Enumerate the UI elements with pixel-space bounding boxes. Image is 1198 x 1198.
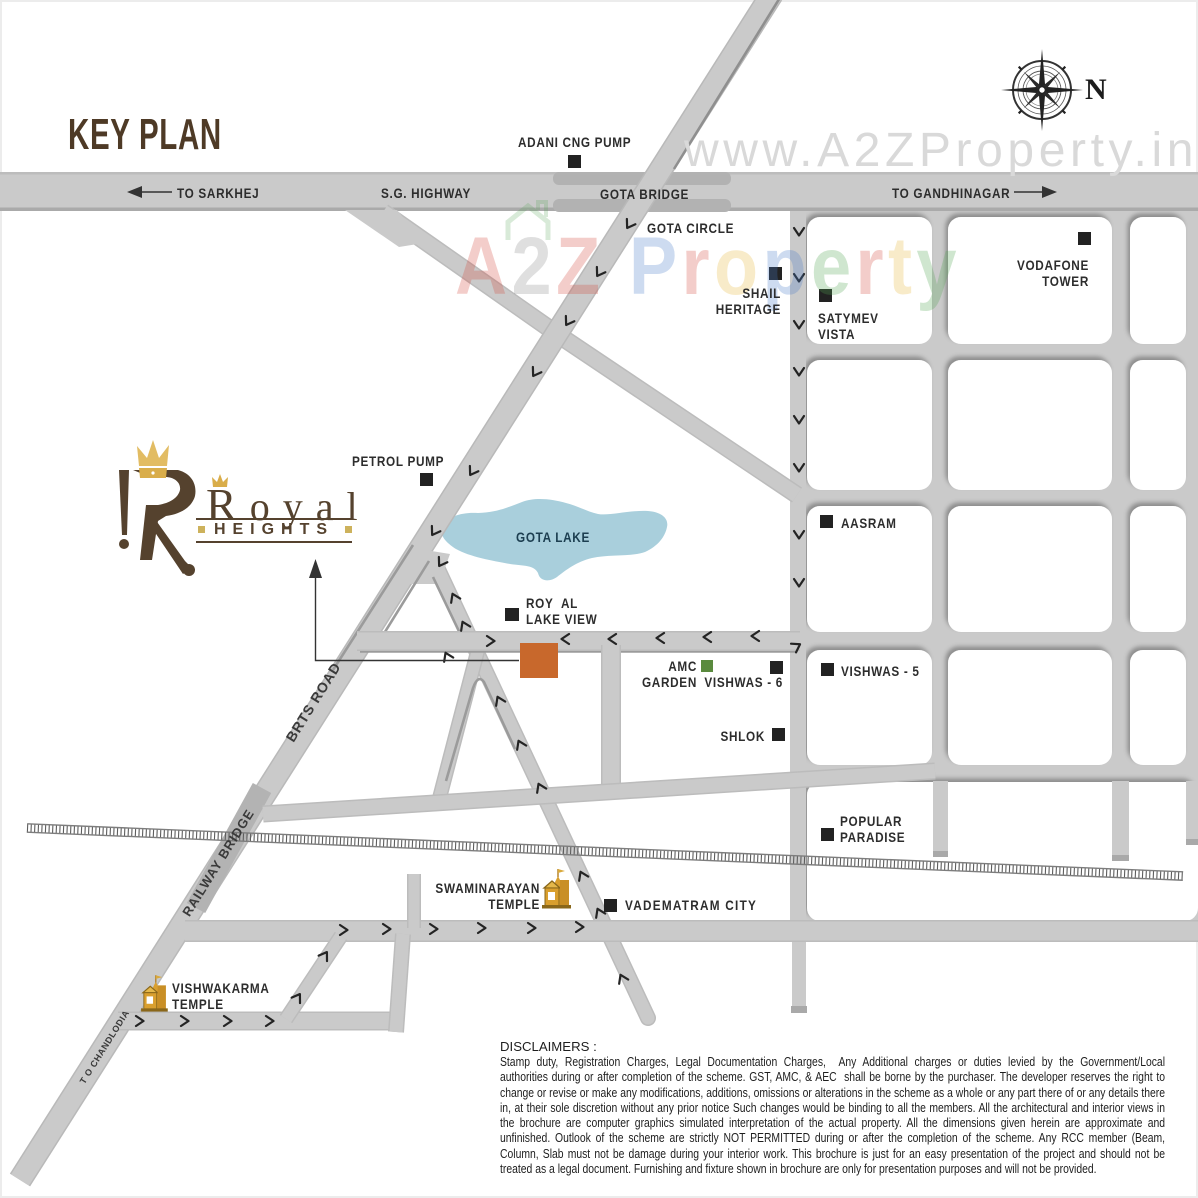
svg-text:N: N xyxy=(1085,73,1107,106)
